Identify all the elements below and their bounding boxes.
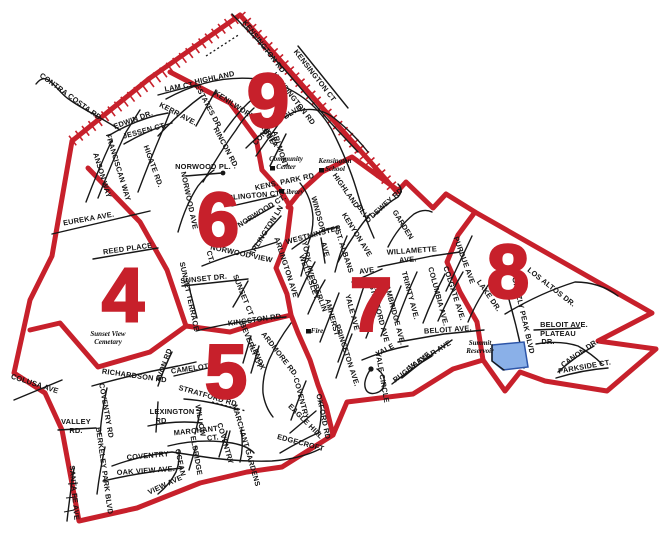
street-label: RUGBY AVE — [391, 350, 432, 385]
street-label: NORWOOD PL. — [175, 162, 231, 171]
street-label: DR. — [541, 337, 554, 346]
street-label: HIGATE RD. — [142, 144, 166, 189]
street-label: SANTA FE AVE — [68, 465, 82, 521]
street-label: RD. — [69, 426, 82, 435]
landmark-label: SummitReservoir — [465, 339, 494, 355]
street-label: BELOIT AVE. — [424, 323, 472, 335]
street-label: AVON RD — [153, 347, 174, 383]
building-marker — [319, 168, 324, 173]
street-label: VALLEY — [61, 417, 91, 426]
district-number: 8 — [487, 230, 529, 315]
landmark-label: Fire — [311, 327, 323, 335]
district-number: 7 — [350, 263, 392, 348]
street-label: WESTMINSTER — [285, 223, 343, 247]
district-number: 6 — [197, 178, 239, 263]
street-label: BERKELEY PARK BLVD — [94, 427, 115, 516]
street-label: CT. — [206, 432, 219, 442]
street-label: AVE — [319, 241, 332, 258]
street-label: CAMELOT — [170, 361, 209, 375]
street-label: TRINITY AVE. — [400, 270, 422, 320]
street-label: OAK VIEW AVE. — [116, 464, 175, 477]
building-marker — [270, 166, 275, 171]
street-label: SUNSET TERRACE — [178, 261, 201, 332]
street-label: CONTRA COSTA RD. — [38, 71, 105, 123]
district-number: 4 — [102, 253, 144, 338]
district-number: 9 — [247, 59, 289, 144]
street-label: YALE CIRCLE — [374, 352, 392, 404]
street-label: AVE. — [399, 254, 417, 264]
summit-reservoir — [492, 342, 528, 370]
street-label: RD — [155, 416, 167, 425]
map-canvas: KENSINGTON RDKENSINGTON RDKENSINGTON CTH… — [0, 0, 664, 558]
street-label: COVENTRY — [126, 449, 169, 462]
street-label: LOS ALTOS DR. — [526, 265, 578, 308]
district-map: KENSINGTON RDKENSINGTON RDKENSINGTON CTH… — [0, 0, 664, 558]
street-label: LEXINGTON — [150, 407, 195, 416]
street-label: BELOIT AVE. — [540, 320, 588, 329]
landmark-label: Library — [281, 188, 305, 196]
district-number: 5 — [205, 330, 247, 415]
